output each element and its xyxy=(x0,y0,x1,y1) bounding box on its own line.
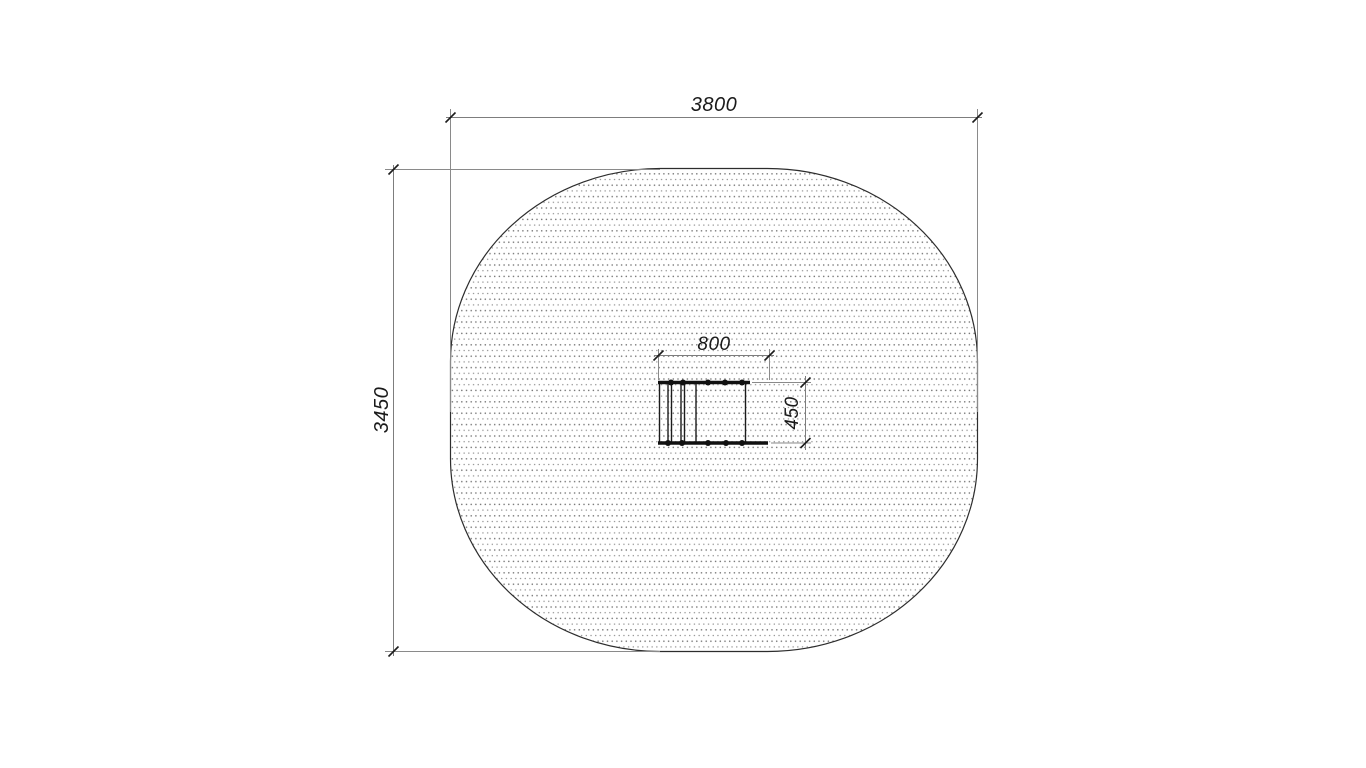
equipment-post xyxy=(680,380,686,386)
equipment-post xyxy=(723,440,729,446)
zone-height-label: 3450 xyxy=(371,387,393,434)
equipment-post xyxy=(668,380,674,386)
plan-drawing: 3800 3450 xyxy=(0,0,1366,768)
equipment-post xyxy=(665,440,671,446)
drawing-canvas: 3800 3450 xyxy=(0,0,1366,768)
equipment-post xyxy=(705,380,711,386)
safety-zone xyxy=(451,169,978,652)
equipment-post xyxy=(679,440,685,446)
equipment-post xyxy=(722,380,728,386)
item-depth-label: 450 xyxy=(782,396,803,429)
equipment-post xyxy=(739,380,745,386)
equipment-post xyxy=(739,440,745,446)
zone-width-label: 3800 xyxy=(691,94,738,116)
safety-zone-outline xyxy=(451,169,978,652)
equipment-post xyxy=(705,440,711,446)
item-width-label: 800 xyxy=(697,334,730,355)
